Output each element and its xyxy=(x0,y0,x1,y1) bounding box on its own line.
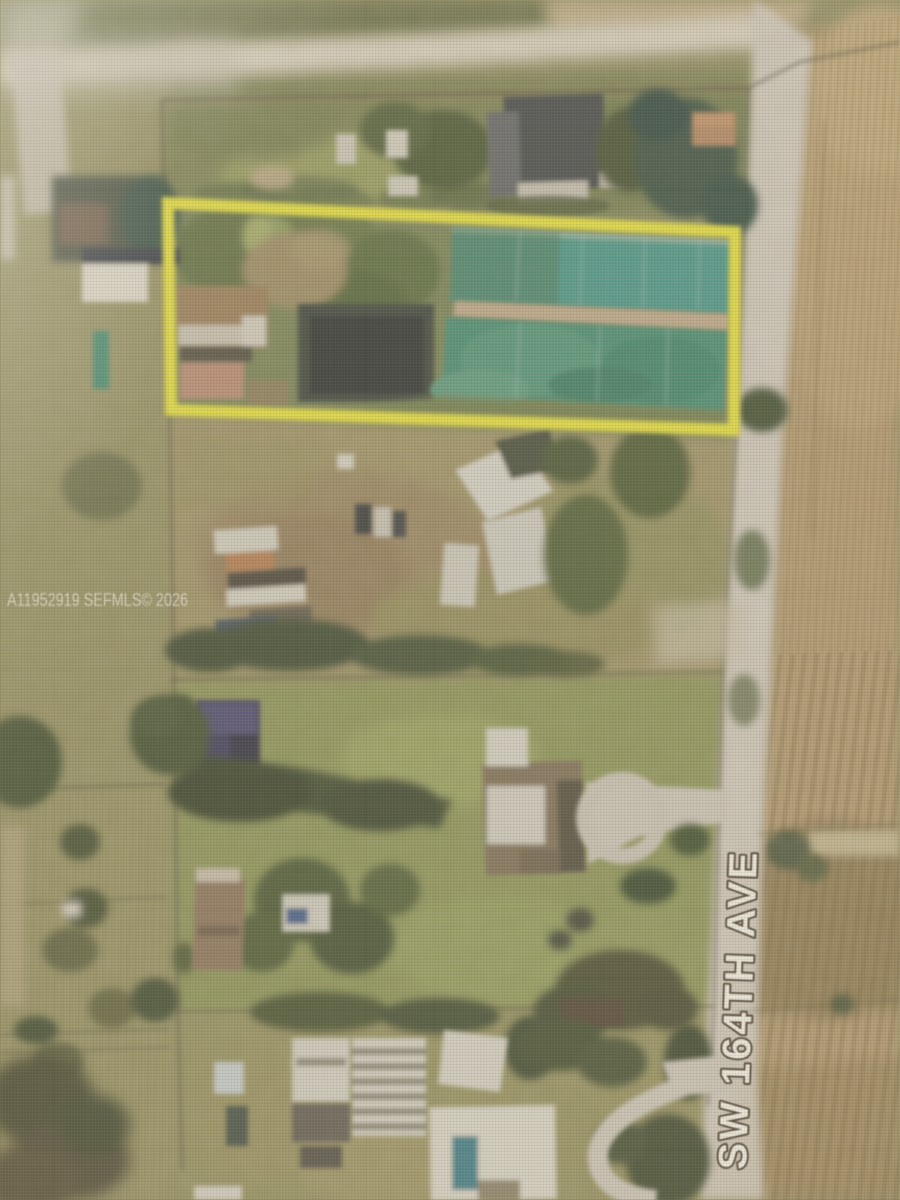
svg-text:A11952919 SEFMLS© 2026: A11952919 SEFMLS© 2026 xyxy=(7,590,188,610)
